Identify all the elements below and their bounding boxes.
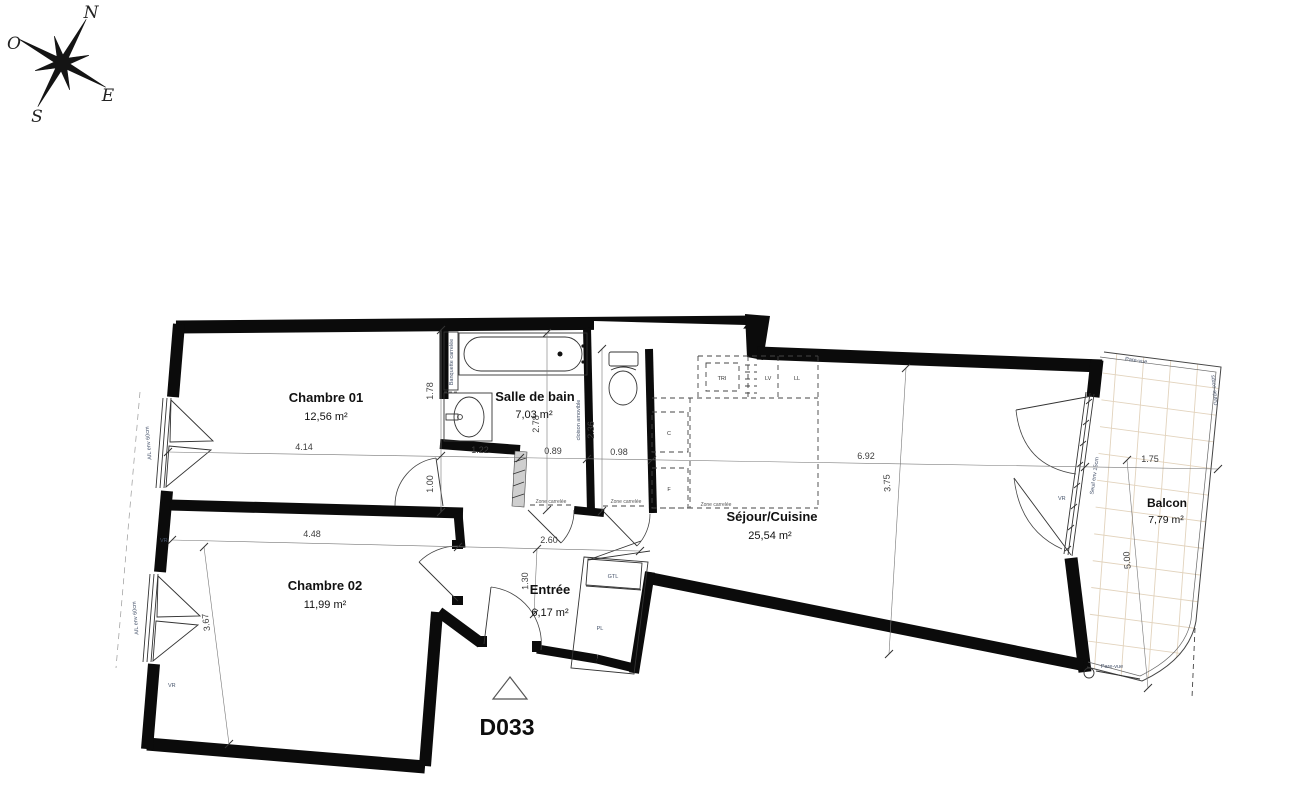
sink [444,393,492,441]
floorplan-page: N O E S [0,0,1305,800]
room-label-balcon: Balcon 7,79 m² [1147,496,1187,526]
zone-carrelee-label: Zone carrelée [536,499,567,505]
dim-692: 6.92 [857,451,875,461]
vr-annotation: VR [1058,496,1066,502]
salle-de-bain-area: 7,03 m² [515,409,553,421]
appliance-tri-label: TRI [718,376,727,382]
compass-north-label: N [83,3,100,23]
dim-122: 1.22 [471,445,489,455]
dim-414: 4.14 [295,442,313,452]
room-label-chambre01: Chambre 01 12,56 m² [289,390,363,423]
dim-375: 3.75 [882,474,893,492]
floorplan-drawing: N O E S [0,0,1305,800]
door-wc [604,512,650,546]
compass-star [18,19,105,106]
dim-178: 1.78 [425,382,435,400]
dim-089: 0.89 [544,446,562,456]
toilet [609,352,638,405]
door-balcony-french [1014,396,1092,555]
room-label-chambre02: Chambre 02 11,99 m² [288,578,362,611]
chambre02-name: Chambre 02 [288,578,362,593]
room-label-sejour: Séjour/Cuisine 25,54 m² [726,509,817,542]
window-balcony-door: Seuil env 15cm VR [1058,392,1101,556]
entree-name: Entrée [530,582,570,597]
entree-area: 6,17 m² [531,607,569,619]
room-label-salle-de-bain: Salle de bain 7,03 m² [495,389,575,421]
zone-carrelee-label: Zone carrelée [611,499,642,505]
fixtures-layer: Banquette carrelée cloison amovible [444,332,638,441]
unit-label: D033 [480,714,535,740]
vr-annotation: VR [168,683,176,689]
chambre01-area: 12,56 m² [304,411,348,423]
allege-annotation: AIL env 60cm [132,601,141,635]
entrance-marker [493,677,527,699]
door-jamb-block [532,641,541,652]
dim-367: 3.67 [200,613,212,632]
salle-de-bain-name: Salle de bain [495,389,575,404]
compass-west-label: O [7,34,21,54]
dim-500: 5.00 [1121,551,1132,569]
vr-annotation: VR [160,538,168,544]
sejour-area: 25,54 m² [748,530,792,542]
bathtub [459,333,587,375]
gtl-label: GTL [608,574,619,580]
pare-vue-annotation: Pare-vue [1101,664,1123,670]
appliance-ll-label: LL [794,376,800,382]
door-chambre01 [395,458,443,506]
dim-260: 2.60 [540,535,558,545]
zone-carrelee-label: Zone carrelée [701,502,732,508]
sejour-name: Séjour/Cuisine [726,509,817,524]
window-chambre01: AIL env 60cm VR [145,398,213,544]
balcon-name: Balcon [1147,496,1187,510]
walls-layer [147,314,1102,767]
room-label-entree: Entrée 6,17 m² [530,582,570,619]
allege-annotation: AIL env 60cm [145,426,154,460]
kitchen-layer: TRI LV LL C F Zone carrelée Zone carrelé… [530,356,818,508]
chambre02-area: 11,99 m² [304,599,347,611]
window-chambre02: AIL env 60cm VR [132,574,200,689]
dishwasher-racks [745,365,757,393]
appliance-c-label: C [667,431,671,437]
appliance-lv-label: LV [765,376,772,382]
appliance-f-label: F [667,487,671,493]
chambre01-name: Chambre 01 [289,390,363,405]
compass-rose: N O E S [7,3,115,127]
dim-100: 1.00 [425,475,435,493]
room-labels-layer: Chambre 01 12,56 m² Salle de bain 7,03 m… [288,389,1187,619]
compass-south-label: S [31,107,43,127]
pl-label: PL [597,626,604,632]
dim-098: 0.98 [610,447,628,457]
door-chambre02 [419,546,458,601]
hatched-jamb [512,451,527,507]
dim-448: 4.48 [303,529,321,539]
compass-east-label: E [101,86,115,106]
dim-175: 1.75 [1141,454,1159,464]
balcon-area: 7,79 m² [1148,514,1184,526]
dim-236: 2.36 [586,421,596,439]
dim-130: 1.30 [520,572,531,590]
door-jamb-block [478,636,487,647]
balcony-dashed-limit [1192,628,1195,698]
seuil-annotation: Seuil env 15cm [1089,456,1100,494]
cloison-annotation: cloison amovible [576,400,582,441]
banquette-annotation: Banquette carrelée [449,339,455,385]
